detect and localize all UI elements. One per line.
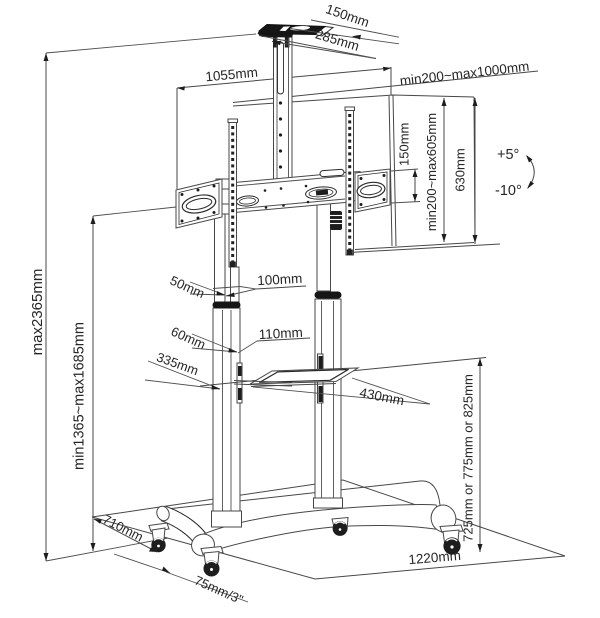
svg-text:max2365mm: max2365mm — [29, 269, 46, 356]
svg-text:150mm: 150mm — [397, 123, 412, 166]
svg-text:-10°: -10° — [495, 183, 522, 199]
svg-text:630mm: 630mm — [453, 148, 468, 191]
svg-text:100mm: 100mm — [257, 271, 303, 288]
svg-text:110mm: 110mm — [258, 325, 303, 342]
svg-text:min200~max605mm: min200~max605mm — [424, 113, 439, 231]
svg-text:725mm or 775mm or 825mm: 725mm or 775mm or 825mm — [461, 374, 476, 542]
svg-text:min1365~max1685mm: min1365~max1685mm — [72, 322, 88, 470]
svg-text:+5°: +5° — [497, 147, 519, 163]
